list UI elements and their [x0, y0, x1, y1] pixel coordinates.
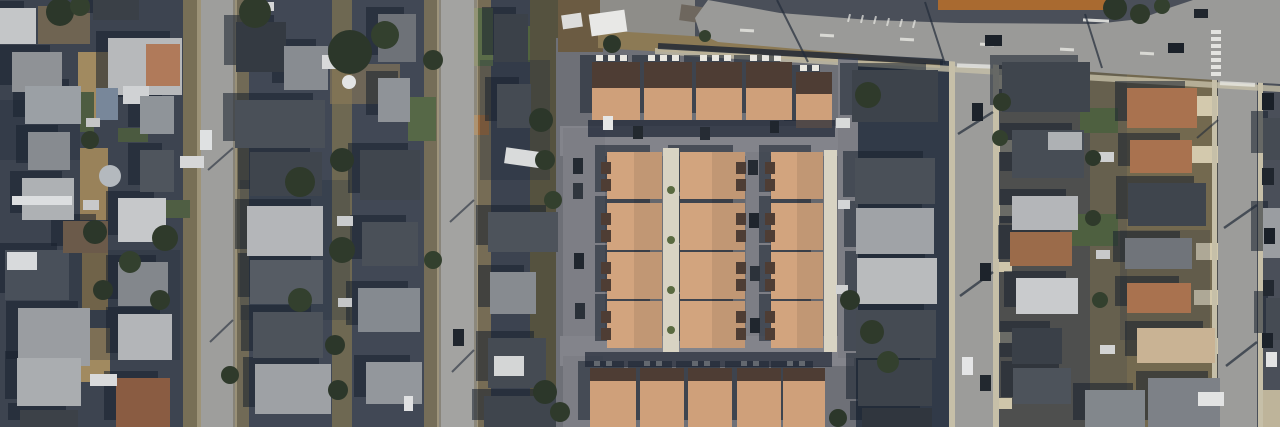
car-dark [574, 253, 584, 269]
sidewalk [1212, 56, 1217, 427]
crosswalk-dash [1211, 44, 1221, 48]
tree [1130, 4, 1150, 24]
tree [329, 237, 355, 263]
lawn [408, 97, 436, 141]
chimney [724, 55, 731, 61]
roof-gable-strip [640, 368, 684, 381]
crosswalk-dash [1211, 37, 1221, 41]
gable-shadow [601, 230, 611, 242]
tree [829, 409, 847, 427]
round-pool [342, 75, 356, 89]
tree [550, 402, 570, 422]
bush [667, 186, 675, 194]
tree [221, 366, 239, 384]
chimney [750, 55, 757, 61]
car-dark [980, 263, 991, 281]
house-roof [488, 212, 558, 252]
shed [836, 118, 850, 128]
house-roof [28, 132, 70, 170]
roof-north-slope [696, 62, 742, 88]
dirt-orange [938, 0, 1108, 10]
roof-north-slope [796, 72, 832, 94]
patio-walkway [663, 148, 679, 352]
tree [529, 108, 553, 132]
roof-north-slope [592, 62, 640, 88]
tree [840, 290, 860, 310]
chimney [596, 55, 603, 61]
gable-shadow [601, 311, 611, 323]
trailer-white [561, 13, 583, 30]
apartment-roof [862, 408, 932, 427]
gable-shadow [601, 213, 611, 225]
driveway [1262, 390, 1280, 427]
shed [338, 298, 352, 307]
house-roof [0, 8, 36, 44]
shed [838, 200, 850, 209]
roof-north-slope [644, 62, 692, 88]
car-dark [1168, 43, 1184, 53]
roof-north-slope [746, 62, 792, 88]
trailer-white [494, 356, 524, 376]
tree [152, 225, 178, 251]
gable-shadow [736, 262, 746, 274]
house-roof [17, 358, 81, 406]
gable-shadow [765, 328, 775, 340]
house-roof [1137, 328, 1215, 363]
house-roof [497, 84, 531, 128]
car-dark [1262, 333, 1273, 348]
chimney [648, 55, 655, 61]
house-roof [378, 78, 410, 122]
house-roof [1002, 62, 1090, 112]
shed [337, 216, 353, 226]
house-roof [362, 222, 418, 266]
street-vertical-2 [441, 0, 474, 427]
house-roof [140, 96, 174, 134]
car-dark [575, 303, 585, 319]
tree [371, 21, 399, 49]
building-shadow-band [588, 120, 835, 137]
roof-gable-strip [688, 368, 732, 381]
swimming-pool [96, 88, 118, 120]
shed [86, 118, 100, 127]
car-dark [985, 35, 1002, 46]
house-roof [255, 364, 331, 414]
gable-shadow [765, 279, 775, 291]
gable-shadow [736, 162, 746, 174]
tree [992, 130, 1008, 146]
building-shadow-band [585, 352, 832, 367]
house-roof [1127, 283, 1191, 313]
gable-shadow [765, 230, 775, 242]
shed [83, 200, 99, 210]
roof-ridge [12, 196, 72, 205]
crosswalk-dash [1211, 58, 1221, 62]
car-dark [1262, 168, 1274, 185]
tree [288, 288, 312, 312]
house-roof [236, 22, 286, 72]
gable-shadow [736, 311, 746, 323]
car-dark [1262, 93, 1274, 110]
house-roof [1130, 140, 1192, 173]
chimney [620, 55, 627, 61]
car-dark [1263, 280, 1274, 296]
roof-shade [634, 152, 662, 348]
crosswalk-dash [1211, 72, 1221, 76]
house-roof [366, 362, 422, 404]
house-roof-shadow [1254, 291, 1268, 333]
tree [150, 290, 170, 310]
roof-gable-strip [783, 368, 825, 381]
house-roof [1128, 183, 1206, 226]
house-roof [1012, 328, 1062, 364]
house-roof [1016, 278, 1078, 314]
crosswalk-dash [1211, 51, 1221, 55]
car-white [1266, 352, 1277, 367]
gable-shadow [736, 279, 746, 291]
house-roof [1013, 368, 1071, 404]
car-dark [980, 375, 991, 391]
house-roof [247, 206, 323, 256]
house-roof [360, 150, 420, 200]
tree [860, 320, 884, 344]
satellite-view [0, 0, 1280, 427]
house-roof [284, 46, 328, 90]
apartment-roof [857, 258, 937, 304]
chimney [608, 55, 615, 61]
chimney [700, 55, 707, 61]
house-roof [1263, 118, 1280, 160]
tree [83, 220, 107, 244]
house-roof [1127, 88, 1197, 128]
gable-shadow [601, 262, 611, 274]
chimney [672, 55, 679, 61]
salmon-roof-section [146, 44, 180, 86]
tree [699, 30, 711, 42]
house-roof [140, 150, 174, 192]
gable-shadow [765, 213, 775, 225]
shed [1100, 345, 1115, 354]
house-roof [490, 272, 536, 314]
car-dark [750, 318, 760, 333]
tree [1085, 210, 1101, 226]
house-roof [253, 312, 323, 358]
car-dark [770, 121, 779, 133]
gable-shadow [601, 328, 611, 340]
tree [285, 167, 315, 197]
house-roof [1012, 196, 1078, 230]
car-dark [748, 160, 758, 175]
house-roof [494, 14, 528, 62]
house-roof [18, 308, 90, 366]
tree [119, 251, 141, 273]
shed [1096, 250, 1110, 259]
gable-shadow [765, 262, 775, 274]
crosswalk-dash [1211, 30, 1221, 34]
house-roof [118, 314, 172, 360]
car-white [404, 396, 413, 411]
tree [533, 380, 557, 404]
car-dark [1194, 9, 1208, 18]
trailer-white [180, 156, 204, 168]
roof-gable-strip [590, 368, 636, 381]
house-roof [250, 260, 323, 304]
chimney [762, 55, 769, 61]
house-roof [358, 288, 420, 332]
tree [325, 335, 345, 355]
car-dark [972, 103, 983, 121]
roof-shade [797, 152, 823, 348]
rv-white [1198, 392, 1224, 406]
gable-shadow [765, 162, 775, 174]
house-roof [93, 0, 139, 20]
house-roof [116, 378, 170, 427]
bush [667, 286, 675, 294]
bush [667, 236, 675, 244]
tree [535, 150, 555, 170]
gable-shadow [736, 213, 746, 225]
sidewalk [949, 52, 955, 427]
aerial-scene [0, 0, 1280, 427]
roof-section [1048, 132, 1082, 150]
house-roof [1125, 238, 1192, 269]
chimney [712, 55, 719, 61]
tree [424, 251, 442, 269]
car-dark [453, 329, 464, 346]
tree [603, 35, 621, 53]
car-dark [573, 183, 583, 199]
chimney [800, 65, 807, 71]
apartment-roof [856, 208, 934, 254]
house-roof [1010, 232, 1072, 266]
chimney [774, 55, 781, 61]
car-dark [573, 158, 583, 174]
car-white [200, 130, 212, 150]
tree [93, 280, 113, 300]
car-dark [749, 213, 759, 228]
tree [1092, 292, 1108, 308]
gable-shadow [736, 328, 746, 340]
gable-shadow [765, 311, 775, 323]
apartment-roof [855, 158, 935, 204]
car-dark [1264, 228, 1275, 244]
tree [328, 380, 348, 400]
tree [855, 82, 881, 108]
house-roof [20, 410, 78, 427]
gable-shadow [601, 179, 611, 191]
car-dark [700, 127, 710, 140]
house-roof [1085, 390, 1145, 427]
tree [330, 148, 354, 172]
tree [993, 93, 1011, 111]
tree [423, 50, 443, 70]
house-roof [235, 100, 325, 148]
tree [1085, 150, 1101, 166]
gable-shadow [736, 179, 746, 191]
trailer-white [90, 374, 117, 386]
chimney [812, 65, 819, 71]
house-roof [25, 86, 81, 124]
gable-shadow [601, 279, 611, 291]
car-dark [750, 266, 760, 281]
roof-section [7, 252, 37, 270]
chimney [660, 55, 667, 61]
gable-shadow [601, 162, 611, 174]
roof-gable-strip [737, 368, 781, 381]
tree [328, 30, 372, 74]
patio-walkway [824, 150, 837, 352]
tree [81, 131, 99, 149]
car-dark [633, 126, 643, 139]
car-white [962, 357, 973, 375]
round-pool [99, 165, 121, 187]
bush [667, 326, 675, 334]
crosswalk-dash [1211, 65, 1221, 69]
gable-shadow [736, 230, 746, 242]
truck-white [603, 116, 613, 130]
tree [877, 351, 899, 373]
gable-shadow [765, 179, 775, 191]
tree [544, 191, 562, 209]
sidewalk [197, 0, 201, 427]
